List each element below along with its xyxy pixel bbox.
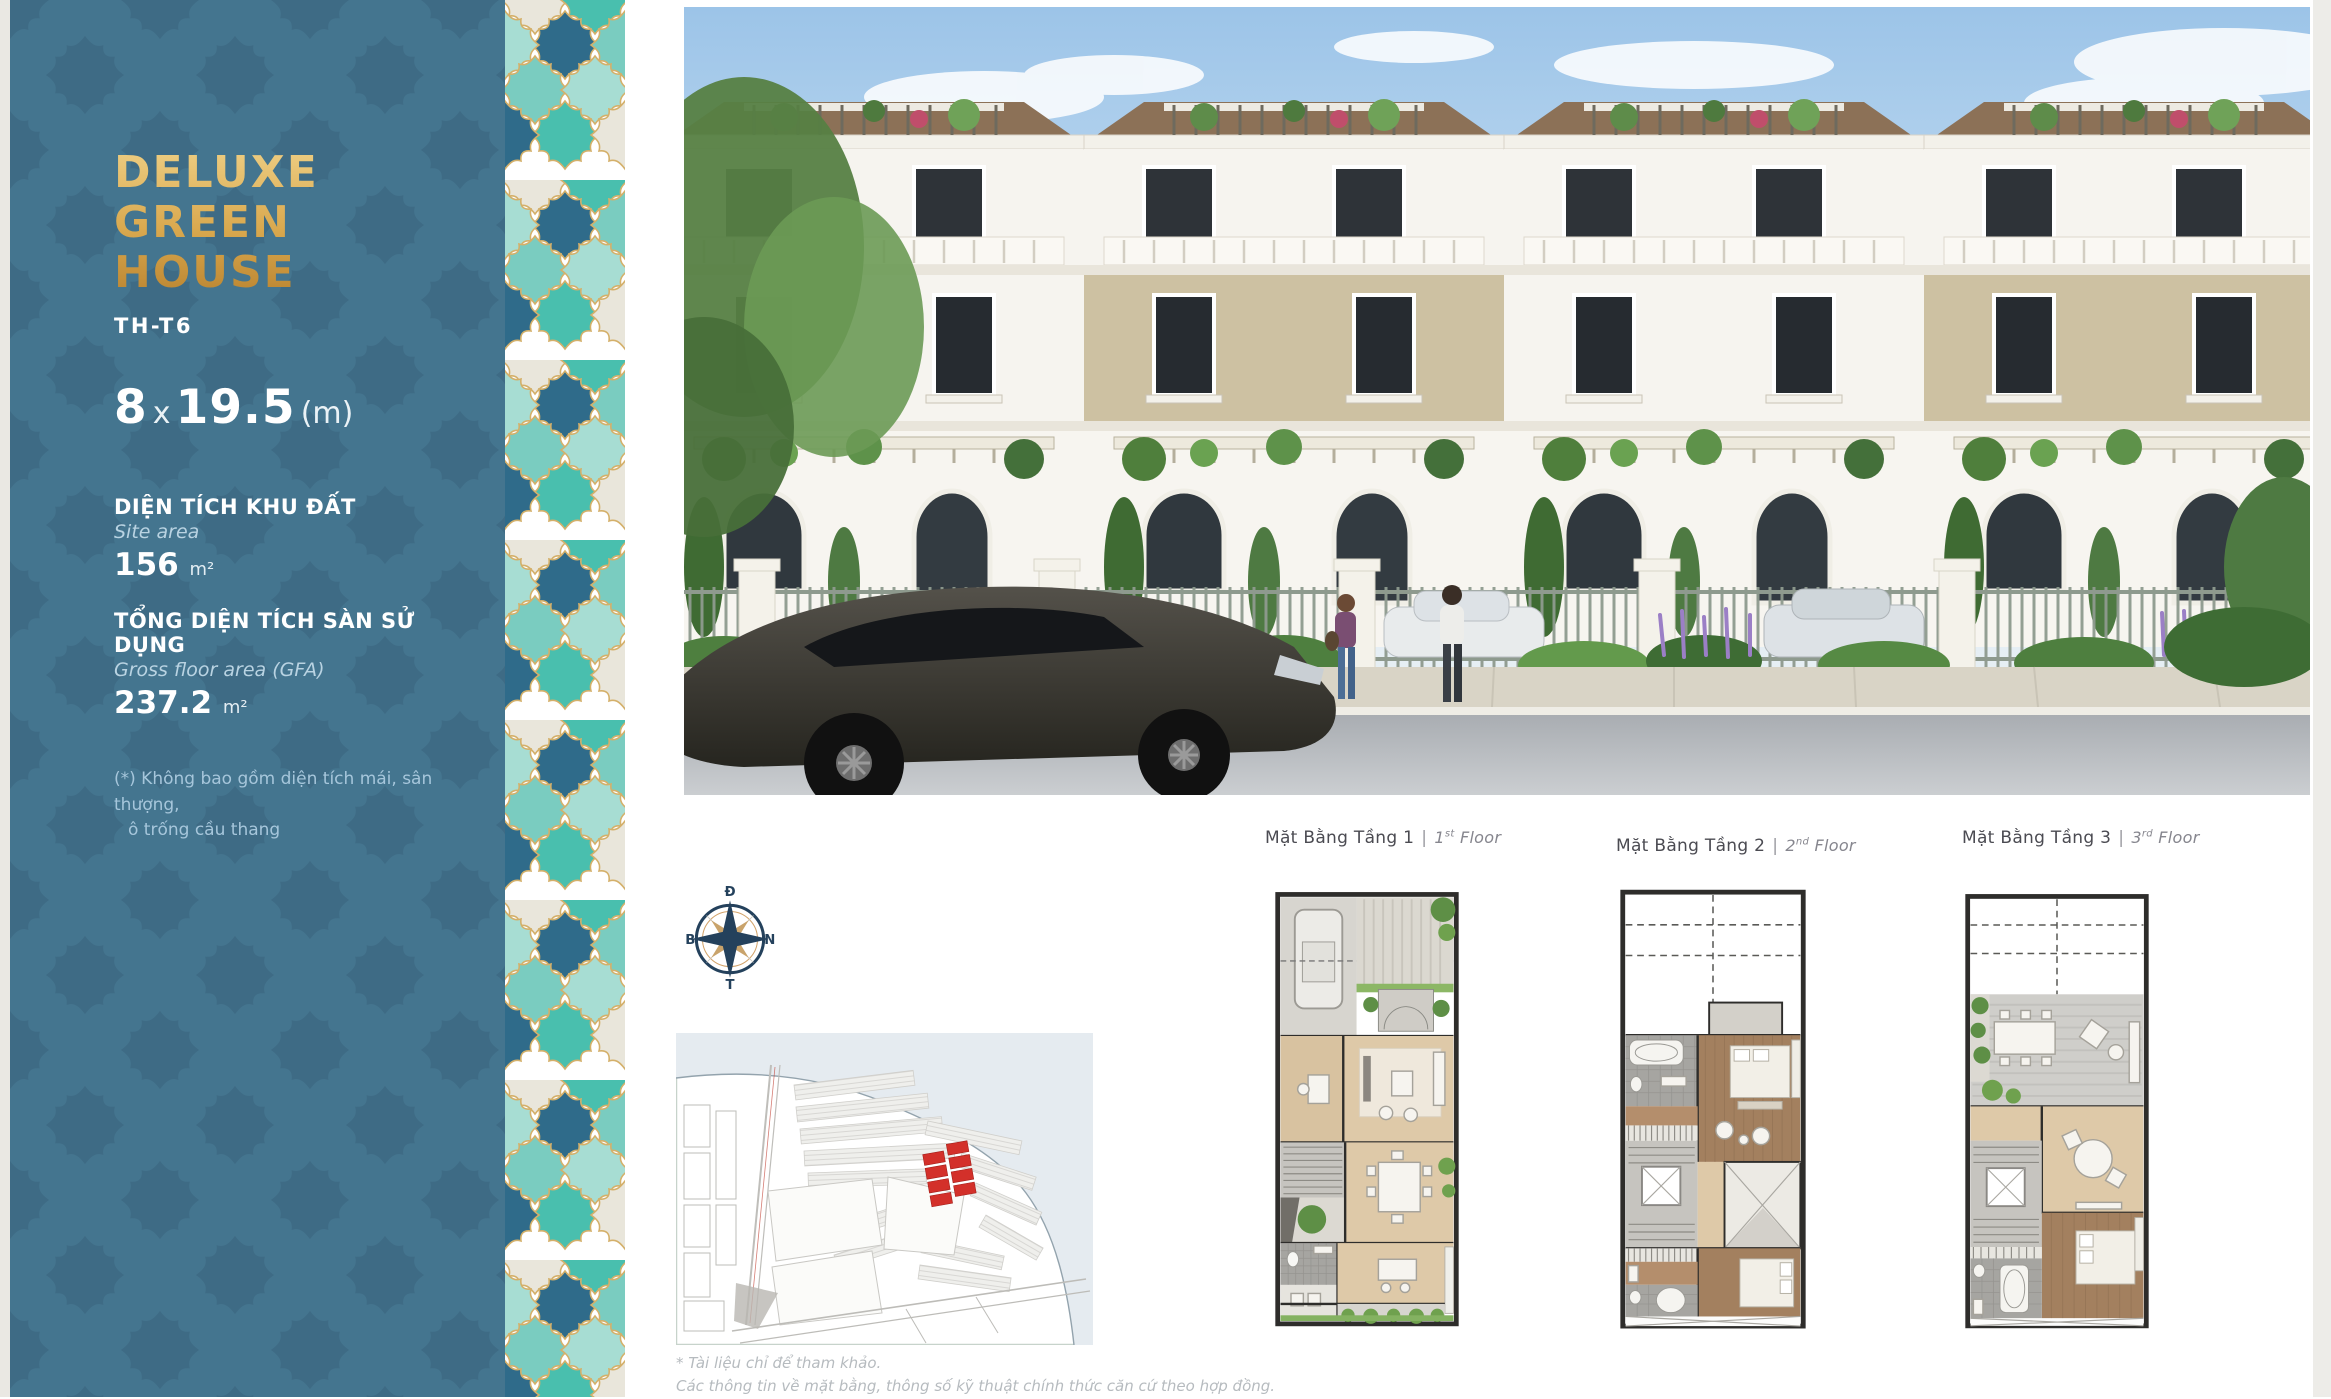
floorplan-1-label: Mặt Bằng Tầng 1|1st Floor: [1265, 828, 1501, 848]
gfa-spec: TỔNG DIỆN TÍCH SÀN SỬ DỤNG Gross floor a…: [114, 609, 484, 721]
floorplan-2-label: Mặt Bằng Tầng 2|2nd Floor: [1616, 836, 1856, 856]
svg-text:T: T: [725, 978, 734, 990]
floorplan-2: [1617, 874, 1809, 1350]
scrollbar[interactable]: [2310, 0, 2331, 1397]
compass-icon: Đ N T B: [684, 884, 776, 990]
tile-mosaic: [505, 0, 631, 1397]
site-map: [676, 1033, 1093, 1345]
page-left-margin: [0, 0, 10, 1397]
svg-text:N: N: [764, 933, 775, 948]
building-render-photo: [684, 7, 2310, 795]
floorplan-1: [1272, 874, 1462, 1350]
reference-disclaimer: * Tài liệu chỉ để tham khảo. Các thông t…: [676, 1352, 1436, 1399]
floorplan-3-label: Mặt Bằng Tầng 3|3rd Floor: [1962, 828, 2200, 848]
decorative-tile-strip: [505, 0, 631, 1397]
floorplan-3: [1962, 876, 2152, 1352]
svg-text:B: B: [685, 933, 695, 948]
lot-dimensions: 8 x 19.5 (m): [114, 380, 484, 435]
unit-code: TH-T6: [114, 314, 484, 338]
svg-text:Đ: Đ: [724, 885, 735, 900]
info-sidebar: DELUXE GREEN HOUSE TH-T6 8 x 19.5 (m) DI…: [10, 0, 505, 1397]
area-footnote: (*) Không bao gồm diện tích mái, sân thư…: [114, 767, 484, 844]
page-title: DELUXE GREEN HOUSE: [114, 148, 484, 298]
site-area-spec: DIỆN TÍCH KHU ĐẤT Site area 156 m²: [114, 495, 484, 583]
